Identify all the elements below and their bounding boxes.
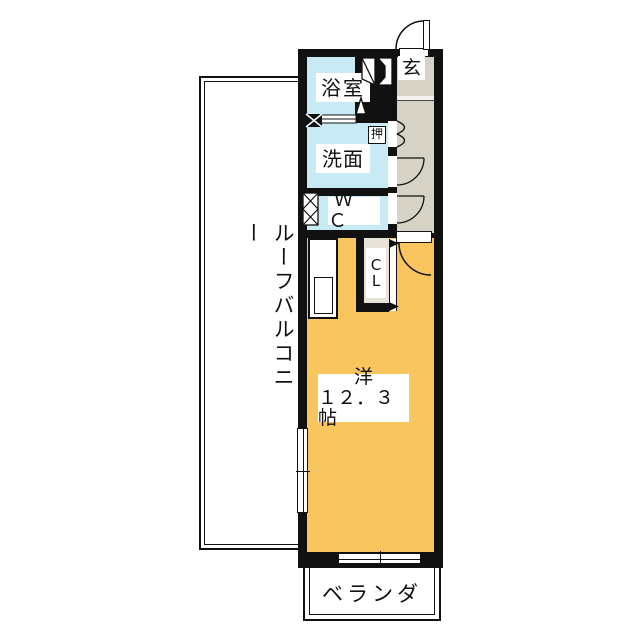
- floor-plan: ルーフバルコニー ベランダ 浴室 玄 押 洗面 ＷＣ C L 洋 １２: [0, 0, 640, 640]
- wc-door-opening: [388, 193, 397, 224]
- storage-door-opening: [388, 121, 397, 147]
- washroom-door-opening: [388, 156, 397, 187]
- roof-balcony-label: ルーフバルコニー: [238, 222, 298, 412]
- toilet-label: ＷＣ: [328, 197, 380, 225]
- main-room-door-leaf: [396, 231, 432, 243]
- entrance-step: [397, 96, 434, 101]
- sliding-window-icon: [297, 428, 308, 513]
- closet-label-line2: L: [372, 273, 380, 290]
- entrance-door-leaf: [423, 20, 430, 50]
- washroom-label: 洗面: [316, 144, 370, 173]
- storage-label: 押: [368, 126, 386, 144]
- veranda-label: ベランダ: [303, 578, 441, 608]
- kitchen-sink: [314, 277, 333, 314]
- bathroom-label: 浴室: [316, 73, 370, 102]
- closet-folding-door: [389, 239, 397, 311]
- closet-label: C L: [366, 248, 386, 298]
- window-tick: [296, 471, 310, 472]
- entrance-door-swing-icon: [396, 21, 424, 49]
- closet-label-line1: C: [371, 257, 381, 274]
- main-room-label: 洋 １２．３帖: [318, 374, 409, 422]
- main-room-label-line1: 洋: [354, 367, 373, 388]
- entrance-label: 玄: [398, 56, 425, 80]
- entrance-hallway-area: [397, 57, 434, 233]
- window-tick: [380, 551, 381, 567]
- sliding-window-icon: [338, 553, 421, 564]
- main-room-label-line2: １２．３帖: [318, 388, 409, 430]
